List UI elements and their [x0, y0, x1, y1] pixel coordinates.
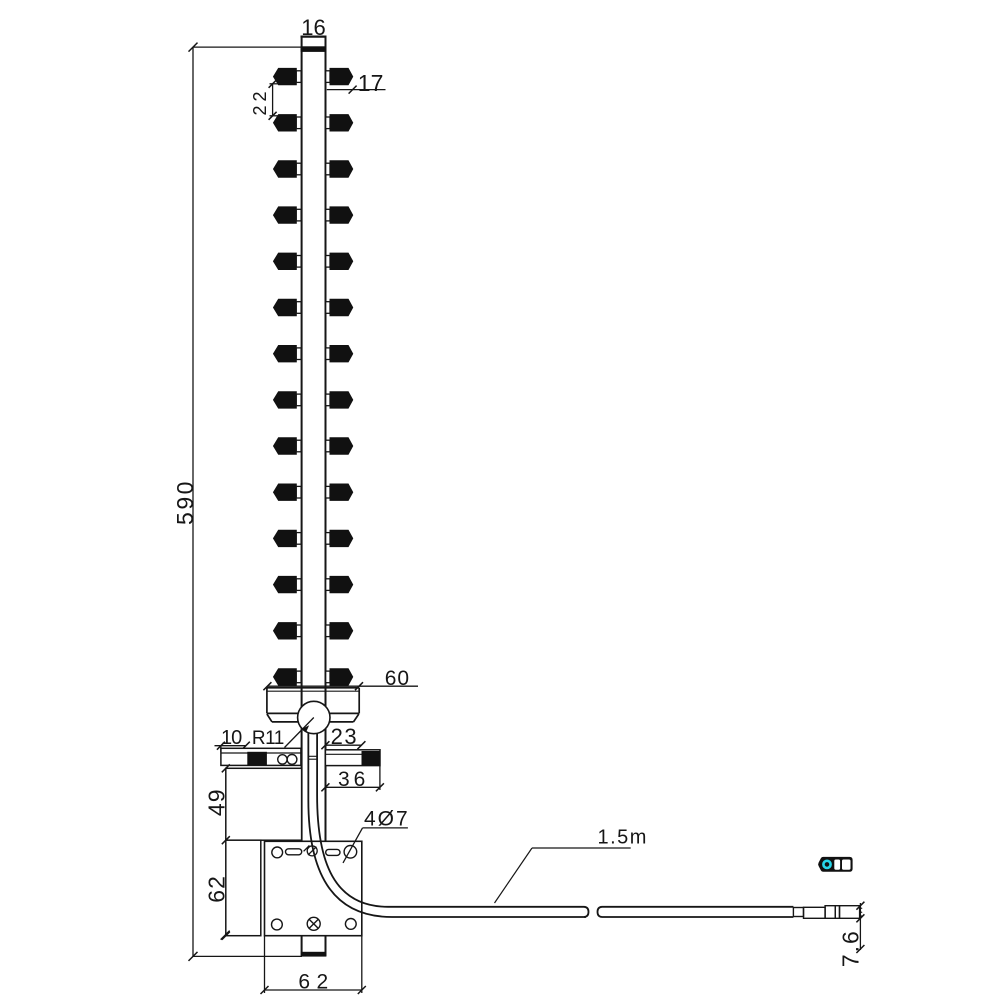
- svg-text:36: 36: [338, 768, 369, 791]
- svg-text:1.5m: 1.5m: [598, 827, 648, 849]
- svg-text:49: 49: [204, 789, 230, 817]
- svg-text:60: 60: [385, 667, 410, 690]
- svg-text:22: 22: [250, 87, 270, 115]
- svg-text:17: 17: [358, 70, 384, 96]
- svg-text:4Ø7: 4Ø7: [364, 808, 410, 831]
- svg-text:590: 590: [172, 479, 198, 525]
- svg-text:62: 62: [298, 971, 334, 994]
- svg-text:62: 62: [204, 875, 230, 903]
- svg-text:R11: R11: [252, 728, 284, 749]
- svg-text:16: 16: [301, 15, 325, 40]
- svg-text:7.6: 7.6: [838, 929, 864, 967]
